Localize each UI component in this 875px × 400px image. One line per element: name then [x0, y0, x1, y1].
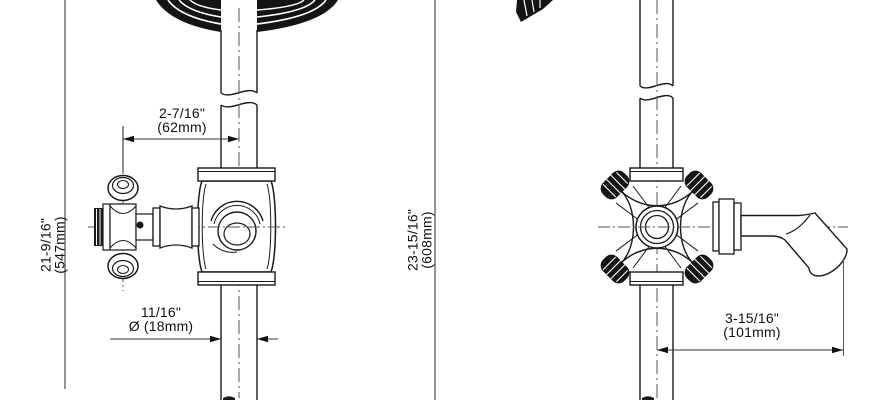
dimension-height-right-metric: (608mm) — [420, 209, 434, 271]
dimension-spacing-metric: (62mm) — [126, 121, 238, 135]
bottom-fitting-stub-right — [642, 396, 654, 400]
front-view — [435, 0, 848, 400]
dimension-spacing-label: 2-7/16" (62mm) — [126, 107, 238, 134]
dimension-diameter-metric: Ø (18mm) — [105, 320, 217, 334]
dimension-height-left-metric: (547mm) — [53, 216, 67, 273]
showerhead-partial-right-icon — [516, 0, 553, 22]
dimension-diameter-label: 11/16" Ø (18mm) — [105, 306, 217, 333]
shower-riser-dimension-drawing: 2-7/16" (62mm) 11/16" Ø (18mm) 21-9/16" … — [0, 0, 875, 400]
side-view — [65, 0, 338, 400]
bottom-fitting-stub-left — [223, 396, 235, 400]
dimension-spout-reach-label: 3-15/16" (101mm) — [696, 312, 808, 339]
dimension-spout-reach-metric: (101mm) — [696, 326, 808, 340]
tub-spout-icon — [713, 199, 847, 276]
dim-diameter — [110, 336, 278, 342]
dimension-height-left-label: 21-9/16" (547mm) — [40, 216, 67, 273]
technical-drawing — [0, 0, 875, 400]
showerhead-partial-icon — [156, 0, 338, 32]
dimension-height-right-label: 23-15/16" (608mm) — [407, 209, 434, 271]
